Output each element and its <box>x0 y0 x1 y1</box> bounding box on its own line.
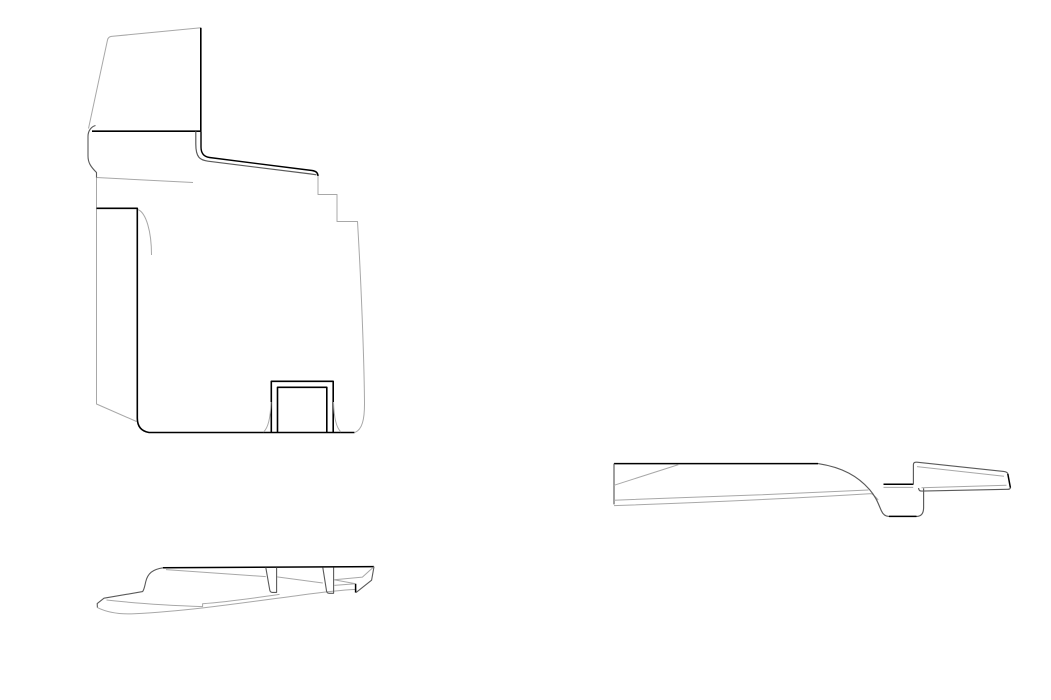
rocker-step-section-drawing <box>614 462 1010 516</box>
diagram-canvas <box>0 0 1051 700</box>
panel-side-view-drawing <box>88 28 365 433</box>
sill-strip-profile-drawing <box>97 567 374 614</box>
line-art-board <box>0 0 1051 700</box>
